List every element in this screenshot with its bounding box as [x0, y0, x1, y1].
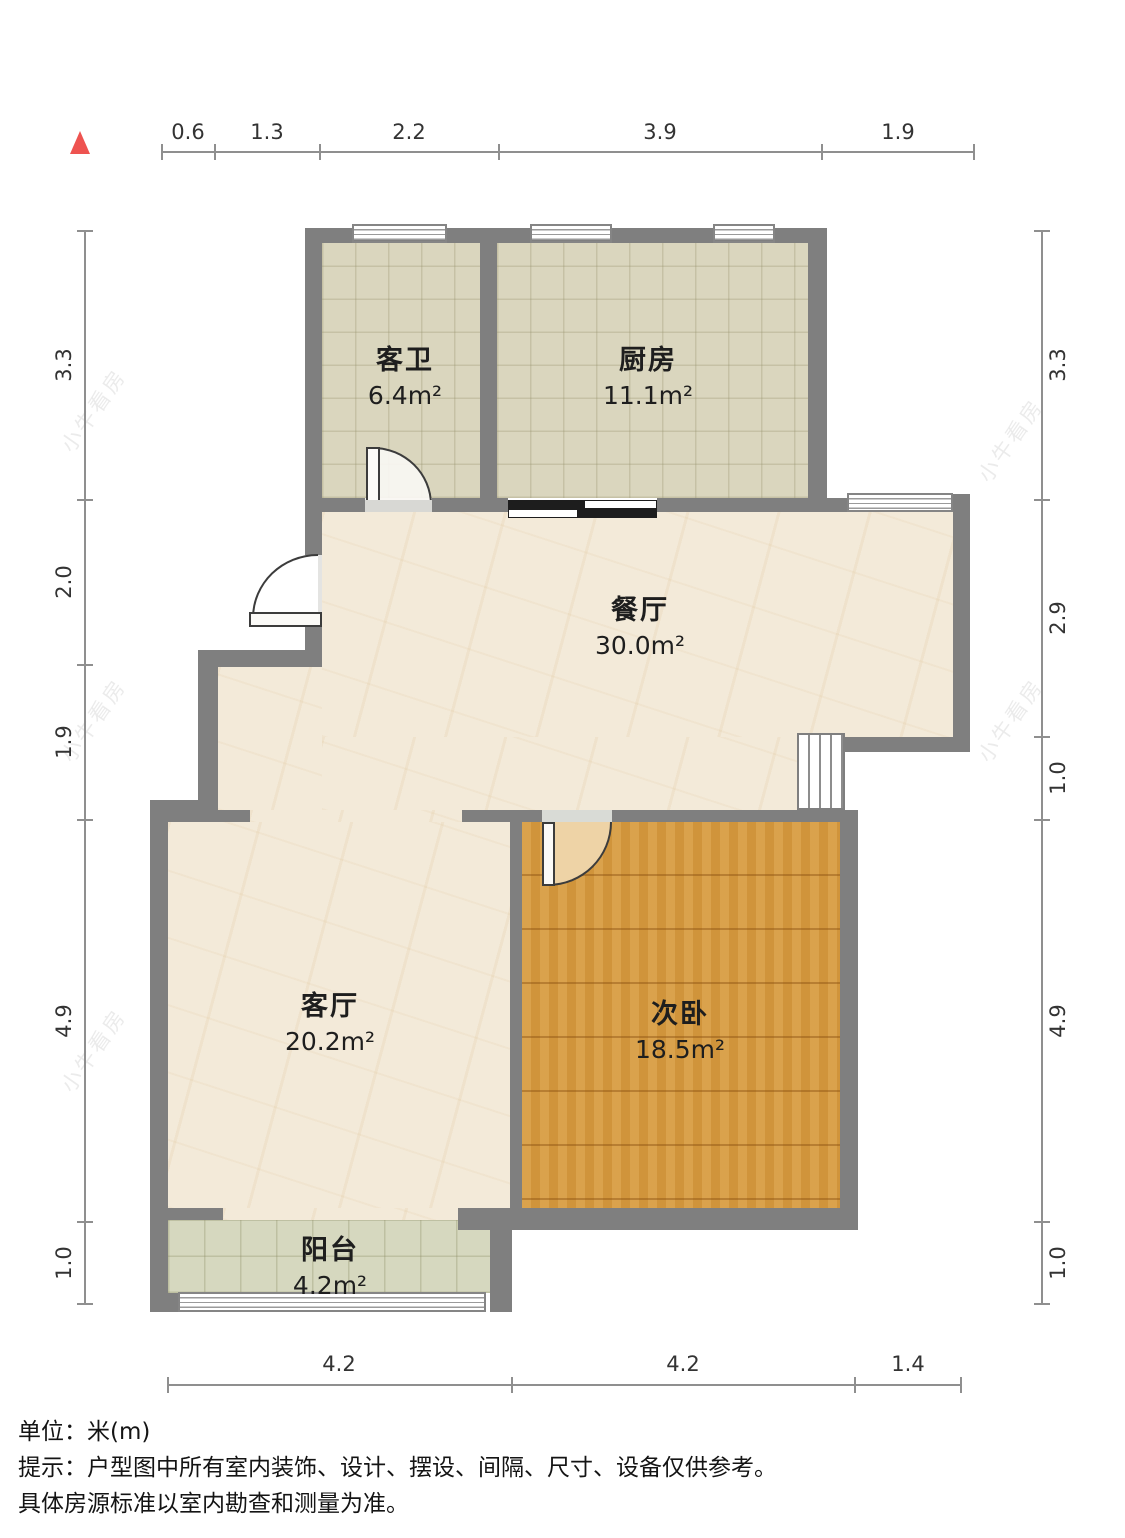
wall-bathroom-bottom-right [432, 498, 508, 512]
watermark: 小牛看房 [970, 392, 1050, 488]
room-name: 厨房 [603, 338, 693, 377]
dim-value: 4.9 [52, 1004, 76, 1037]
dim-value: 0.6 [171, 120, 204, 144]
dim-tick [973, 144, 975, 160]
dim-value: 2.0 [52, 565, 76, 598]
dim-tick [77, 1303, 93, 1305]
dim-tick [1034, 736, 1050, 738]
door-sill-bathroom [365, 500, 432, 512]
dim-tick [1034, 819, 1050, 821]
footer-notes: 单位：米(m) 提示：户型图中所有室内装饰、设计、摆设、间隔、尺寸、设备仅供参考… [18, 1414, 777, 1522]
unit-note: 单位：米(m) [18, 1414, 777, 1450]
dim-value: 4.9 [1046, 1004, 1070, 1037]
room-name: 餐厅 [595, 588, 685, 627]
hint-note: 提示：户型图中所有室内装饰、设计、摆设、间隔、尺寸、设备仅供参考。 [18, 1450, 777, 1486]
room-area: 4.2m² [293, 1271, 367, 1300]
wall-hallway-left [198, 667, 218, 802]
wall-entry-above-door [305, 512, 322, 555]
watermark: 小牛看房 [970, 672, 1050, 768]
dim-value: 1.9 [52, 725, 76, 758]
dim-tick [1034, 499, 1050, 501]
wall-bottom [458, 1208, 858, 1230]
wall-step-upper-left [198, 650, 322, 667]
radiator [797, 733, 845, 810]
dim-value: 4.2 [322, 1352, 355, 1376]
room-area: 18.5m² [635, 1035, 725, 1064]
wall-living-bedroom-divider [510, 822, 522, 1208]
wall-outer-right [953, 494, 970, 752]
dim-value: 1.0 [1046, 761, 1070, 794]
sliding-door-panel [584, 500, 657, 509]
room-label-kitchen: 厨房 11.1m² [603, 338, 693, 410]
dim-value: 1.4 [891, 1352, 924, 1376]
room-label-guest-bathroom: 客卫 6.4m² [368, 338, 442, 410]
dim-value: 1.0 [1046, 1246, 1070, 1279]
wall-living-top-stub-right [462, 810, 542, 822]
dim-tick [1034, 1303, 1050, 1305]
room-label-balcony: 阳台 4.2m² [293, 1228, 367, 1300]
dim-tick [161, 144, 163, 160]
dim-tick [1034, 230, 1050, 232]
dim-tick [167, 1377, 169, 1393]
floorplan-canvas: 小牛看房 小牛看房 小牛看房 小牛看房 小牛看房 小牛看房 小牛看房 [0, 0, 1125, 1538]
room-name: 次卧 [635, 992, 725, 1031]
wall-kitchen-bottom [657, 498, 847, 512]
dim-line-left [84, 230, 86, 1305]
sliding-door-panel [578, 509, 657, 518]
wall-bathroom-kitchen-divider [480, 243, 497, 512]
dim-tick [319, 144, 321, 160]
room-label-dining: 餐厅 30.0m² [595, 588, 685, 660]
wall-balcony-right [490, 1208, 512, 1312]
dim-value: 2.9 [1046, 601, 1070, 634]
window-kitchen-right [713, 224, 775, 243]
wall-outer-left [150, 800, 168, 1312]
dim-line-top [161, 151, 975, 153]
dim-value: 4.2 [666, 1352, 699, 1376]
doorway-bedroom [542, 810, 612, 822]
room-label-bedroom: 次卧 18.5m² [635, 992, 725, 1064]
wall-bathroom-left [305, 228, 322, 512]
dim-tick [854, 1377, 856, 1393]
room-label-living: 客厅 20.2m² [285, 984, 375, 1056]
room-area: 11.1m² [603, 381, 693, 410]
wall-bedroom-right [840, 810, 858, 1230]
floor-opening-strip [250, 810, 462, 822]
room-name: 客厅 [285, 984, 375, 1023]
dim-value: 1.3 [250, 120, 283, 144]
dim-value: 2.2 [392, 120, 425, 144]
wall-living-top-stub-left [218, 810, 250, 822]
room-area: 6.4m² [368, 381, 442, 410]
window-kitchen-left [530, 224, 612, 243]
hint-note2: 具体房源标准以室内勘查和测量为准。 [18, 1486, 777, 1522]
dim-tick [960, 1377, 962, 1393]
dim-tick [821, 144, 823, 160]
dim-line-bottom [167, 1384, 962, 1386]
room-name: 阳台 [293, 1228, 367, 1267]
dim-value: 3.9 [643, 120, 676, 144]
door-leaf-bedroom [542, 822, 555, 886]
dim-tick [1034, 1221, 1050, 1223]
dim-value: 1.0 [52, 1246, 76, 1279]
dim-tick [511, 1377, 513, 1393]
wall-bedroom-top [612, 810, 845, 822]
door-leaf-bathroom [366, 447, 380, 505]
wall-step-right [840, 737, 970, 752]
wall-bathroom-bottom-left [305, 498, 365, 512]
dim-tick [77, 230, 93, 232]
sliding-door-panel [508, 509, 578, 518]
room-area: 20.2m² [285, 1027, 375, 1056]
window-bathroom [352, 224, 447, 243]
dim-value: 3.3 [52, 348, 76, 381]
sliding-door-panel [508, 500, 584, 509]
dim-tick [77, 664, 93, 666]
wall-kitchen-right [808, 228, 827, 512]
dim-tick [77, 819, 93, 821]
window-dining [847, 493, 953, 512]
door-arc-entrance [252, 554, 318, 618]
dim-tick [77, 499, 93, 501]
dim-line-right [1041, 230, 1043, 1305]
dim-value: 3.3 [1046, 348, 1070, 381]
room-name: 客卫 [368, 338, 442, 377]
north-arrow-icon [70, 131, 90, 154]
floor-hallway [218, 667, 322, 810]
door-leaf-entrance [249, 612, 322, 627]
floor-dining-lower [322, 737, 840, 810]
wall-living-bottom-stub [168, 1208, 223, 1220]
dim-tick [77, 1221, 93, 1223]
dim-tick [498, 144, 500, 160]
dim-value: 1.9 [881, 120, 914, 144]
dim-tick [214, 144, 216, 160]
room-area: 30.0m² [595, 631, 685, 660]
floor-balcony-opening [223, 1208, 458, 1220]
